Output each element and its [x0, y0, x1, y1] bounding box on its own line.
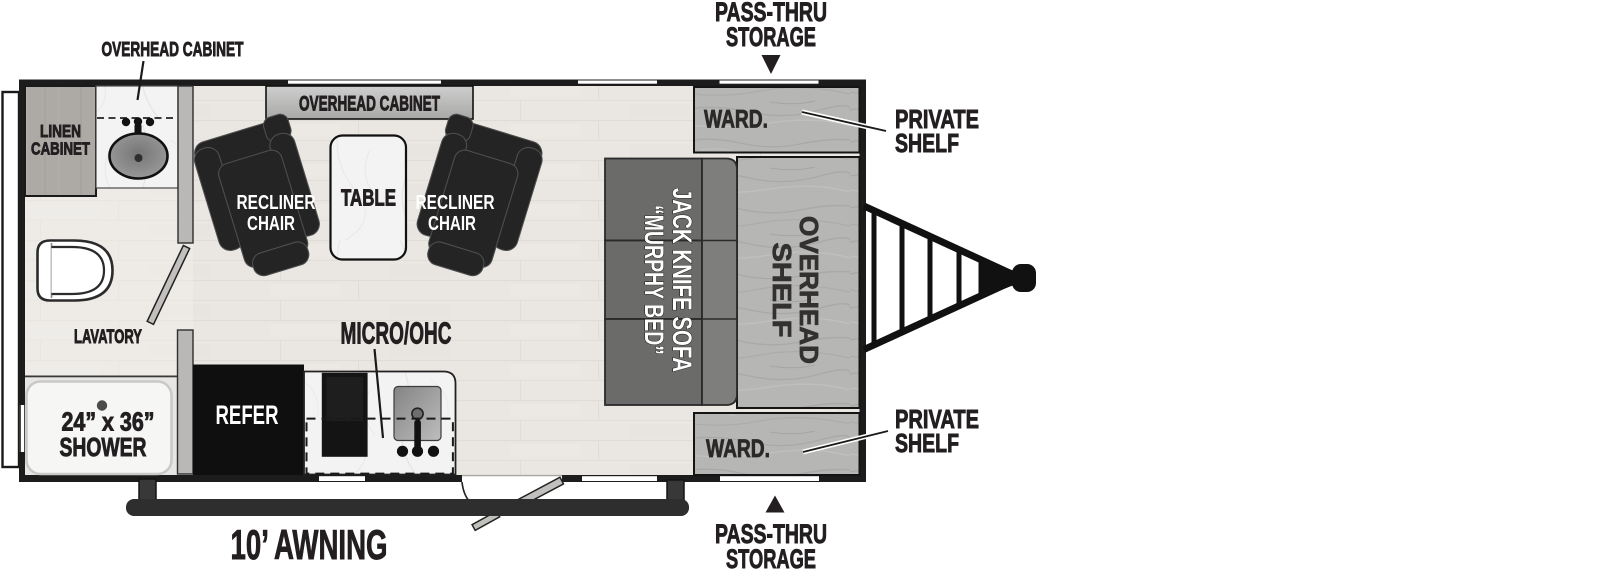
- svg-text:RECLINER: RECLINER: [416, 191, 495, 214]
- svg-text:SHELF: SHELF: [895, 128, 959, 158]
- svg-text:CABINET: CABINET: [31, 139, 90, 159]
- svg-text:“MURPHY BED”: “MURPHY BED”: [639, 205, 669, 355]
- svg-text:REFER: REFER: [216, 400, 279, 430]
- svg-text:OVERHEAD: OVERHEAD: [794, 216, 824, 364]
- svg-text:OVERHEAD CABINET: OVERHEAD CABINET: [102, 39, 244, 61]
- svg-text:STORAGE: STORAGE: [726, 544, 816, 570]
- svg-text:SHELF: SHELF: [767, 243, 797, 338]
- svg-text:WARD.: WARD.: [704, 106, 768, 134]
- svg-text:SHELF: SHELF: [895, 428, 959, 458]
- svg-text:TABLE: TABLE: [341, 185, 396, 211]
- svg-text:JACK KNIFE SOFA: JACK KNIFE SOFA: [667, 188, 697, 372]
- svg-text:WARD.: WARD.: [706, 435, 770, 463]
- svg-text:10’ AWNING: 10’ AWNING: [231, 521, 388, 568]
- svg-text:OVERHEAD CABINET: OVERHEAD CABINET: [299, 93, 440, 116]
- svg-text:LAVATORY: LAVATORY: [74, 327, 142, 348]
- svg-text:STORAGE: STORAGE: [726, 22, 816, 52]
- svg-text:CHAIR: CHAIR: [428, 212, 476, 235]
- svg-text:MICRO/OHC: MICRO/OHC: [341, 316, 452, 351]
- svg-text:RECLINER: RECLINER: [237, 191, 316, 214]
- svg-text:SHOWER: SHOWER: [60, 432, 147, 462]
- svg-text:CHAIR: CHAIR: [247, 212, 295, 235]
